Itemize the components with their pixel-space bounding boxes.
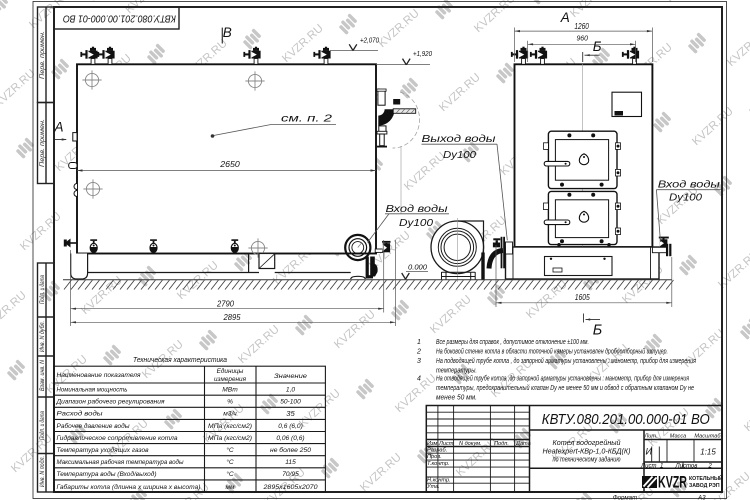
svg-text:Наименование показателя: Наименование показателя <box>57 372 141 379</box>
svg-text:960: 960 <box>576 35 588 42</box>
svg-text:Котел водогрейный: Котел водогрейный <box>553 439 621 447</box>
svg-text:Значение: Значение <box>274 373 307 380</box>
svg-text:Б: Б <box>593 323 602 339</box>
svg-text:1260: 1260 <box>574 22 589 31</box>
svg-text:Выход воды: Выход воды <box>422 133 496 145</box>
svg-text:0.000: 0.000 <box>408 265 427 272</box>
svg-text:Т.контр.: Т.контр. <box>427 461 450 467</box>
svg-text:не более 250: не более 250 <box>270 446 311 454</box>
svg-text:м3/ч: м3/ч <box>223 411 237 418</box>
svg-text:Расход воды: Расход воды <box>57 410 103 418</box>
svg-text:Разраб.: Разраб. <box>427 447 447 453</box>
svg-text:МВт: МВт <box>222 387 238 394</box>
svg-text:2790: 2790 <box>216 299 234 308</box>
svg-text:1:15: 1:15 <box>700 448 716 457</box>
svg-text:70/95: 70/95 <box>282 471 299 478</box>
svg-text:1: 1 <box>417 339 421 346</box>
svg-text:Температура воды (Вход/выход): Температура воды (Вход/выход) <box>57 470 157 478</box>
svg-text:Изм.: Изм. <box>427 441 439 447</box>
svg-text:Вход воды: Вход воды <box>386 203 448 215</box>
svg-text:см. п. 2: см. п. 2 <box>281 112 332 124</box>
svg-text:На отводящей трубе котла ,до з: На отводящей трубе котла ,до запорной ар… <box>436 375 689 383</box>
svg-text:50-100: 50-100 <box>280 399 301 406</box>
svg-text:°С: °С <box>226 458 234 466</box>
svg-text:Диапазон рабочего регулировани: Диапазон рабочего регулирования <box>55 398 164 406</box>
svg-text:Перв. примен.: Перв. примен. <box>39 119 46 167</box>
svg-text:Пров.: Пров. <box>427 454 442 460</box>
svg-text:А3: А3 <box>697 495 706 500</box>
svg-text:А: А <box>54 120 64 135</box>
svg-text:1605: 1605 <box>575 293 590 302</box>
svg-text:3: 3 <box>417 358 421 365</box>
svg-text:Взам. инв. N: Взам. инв. N <box>39 360 46 391</box>
svg-text:KVZR: KVZR <box>658 474 687 492</box>
svg-text:2650: 2650 <box>219 160 240 169</box>
svg-text:+2,070: +2,070 <box>360 36 380 45</box>
svg-text:Температура уходящих газов: Температура уходящих газов <box>57 446 150 454</box>
svg-text:Номинальная мощность: Номинальная мощность <box>57 387 128 394</box>
svg-text:Лит.: Лит. <box>643 434 657 440</box>
svg-text:+1,920: +1,920 <box>413 49 433 58</box>
svg-text:Инв. N подл.: Инв. N подл. <box>39 456 46 487</box>
svg-text:Лист: Лист <box>438 441 454 447</box>
svg-text:МПа (кгс/см2): МПа (кгс/см2) <box>208 435 252 442</box>
svg-text:2895: 2895 <box>223 313 241 322</box>
svg-text:4: 4 <box>417 376 421 383</box>
svg-text:А: А <box>560 10 570 25</box>
svg-text:Н.контр.: Н.контр. <box>427 477 451 483</box>
svg-text:Формат: Формат <box>613 495 638 500</box>
svg-text:2895х1605х2070: 2895х1605х2070 <box>262 484 317 491</box>
svg-text:1,0: 1,0 <box>286 387 295 394</box>
svg-text:измерения: измерения <box>214 376 247 383</box>
svg-text:Подп.: Подп. <box>494 441 509 447</box>
svg-text:Дата: Дата <box>515 441 531 447</box>
svg-text:Утв.: Утв. <box>426 484 440 490</box>
svg-text:Б: Б <box>593 39 602 54</box>
svg-text:0,06 (0,6): 0,06 (0,6) <box>276 435 304 442</box>
svg-text:Максимальная рабочая температу: Максимальная рабочая температура воды <box>57 458 184 466</box>
svg-text:Heatexpert-КВр-1,0-КБД(К): Heatexpert-КВр-1,0-КБД(К) <box>543 449 631 456</box>
svg-text:МПа (кгс/см2): МПа (кгс/см2) <box>208 423 252 430</box>
svg-text:Все размеры для справок , допу: Все размеры для справок , допустимое отк… <box>436 338 589 346</box>
svg-text:%: % <box>227 399 233 406</box>
svg-text:И: И <box>646 447 653 457</box>
svg-text:Подп. и дата: Подп. и дата <box>39 275 46 304</box>
svg-text:Габариты котла (длинна х ширин: Габариты котла (длинна х ширина х высота… <box>57 483 201 491</box>
svg-text:Масштаб: Масштаб <box>694 434 721 440</box>
svg-text:температуры, предохранительный: температуры, предохранительный клапан Dу… <box>436 384 694 392</box>
svg-text:Dy100: Dy100 <box>669 192 702 204</box>
svg-text:Листов: Листов <box>675 463 698 469</box>
svg-text:Подп. и дата: Подп. и дата <box>39 411 46 440</box>
svg-text:температуры.: температуры. <box>436 368 477 375</box>
svg-text:КВТУ.080.201.00.000-01 ВО: КВТУ.080.201.00.000-01 ВО <box>63 13 176 25</box>
svg-text:Инв. N дубл.: Инв. N дубл. <box>39 321 46 352</box>
svg-text:по техническому заданию: по техническому заданию <box>553 456 622 464</box>
svg-text:менее 50 мм.: менее 50 мм. <box>436 395 477 402</box>
svg-text:35: 35 <box>286 409 295 418</box>
svg-text:мм: мм <box>225 484 235 491</box>
svg-text:N докум.: N докум. <box>459 441 482 447</box>
svg-text:Dy100: Dy100 <box>399 217 433 229</box>
svg-text:°С: °С <box>226 470 234 478</box>
svg-text:Рабочее давление воды: Рабочее давление воды <box>57 422 130 430</box>
svg-text:Единицы: Единицы <box>217 367 244 375</box>
svg-text:1: 1 <box>660 463 663 469</box>
svg-text:0,6 (6,0): 0,6 (6,0) <box>278 423 303 430</box>
svg-text:На боковой стенке котла в обла: На боковой стенке котла в области топочн… <box>436 348 668 356</box>
svg-text:Масса: Масса <box>670 434 687 440</box>
svg-text:ЗАВОД РЭП: ЗАВОД РЭП <box>689 483 720 489</box>
svg-text:Техническая характеристика: Техническая характеристика <box>133 355 227 364</box>
svg-text:°С: °С <box>226 446 234 454</box>
svg-text:Dy100: Dy100 <box>443 149 476 161</box>
svg-text:КВТУ.080.201.00.000-01 ВО: КВТУ.080.201.00.000-01 ВО <box>542 411 710 428</box>
svg-text:Вход воды: Вход воды <box>658 179 720 191</box>
svg-text:2: 2 <box>416 349 421 356</box>
svg-text:Лист: Лист <box>640 463 656 469</box>
svg-text:115: 115 <box>285 459 296 466</box>
svg-text:2: 2 <box>708 463 713 469</box>
svg-text:Гидравлическое сопротивление к: Гидравлическое сопротивление котла <box>57 434 178 442</box>
svg-text:КОТЕЛЬНЫЙ: КОТЕЛЬНЫЙ <box>689 474 723 482</box>
svg-text:Перв. примен.: Перв. примен. <box>39 31 46 79</box>
svg-text:На подводящей трубе котла , д: На подводящей трубе котла , до запорной … <box>436 357 696 365</box>
svg-text:В: В <box>223 25 232 40</box>
